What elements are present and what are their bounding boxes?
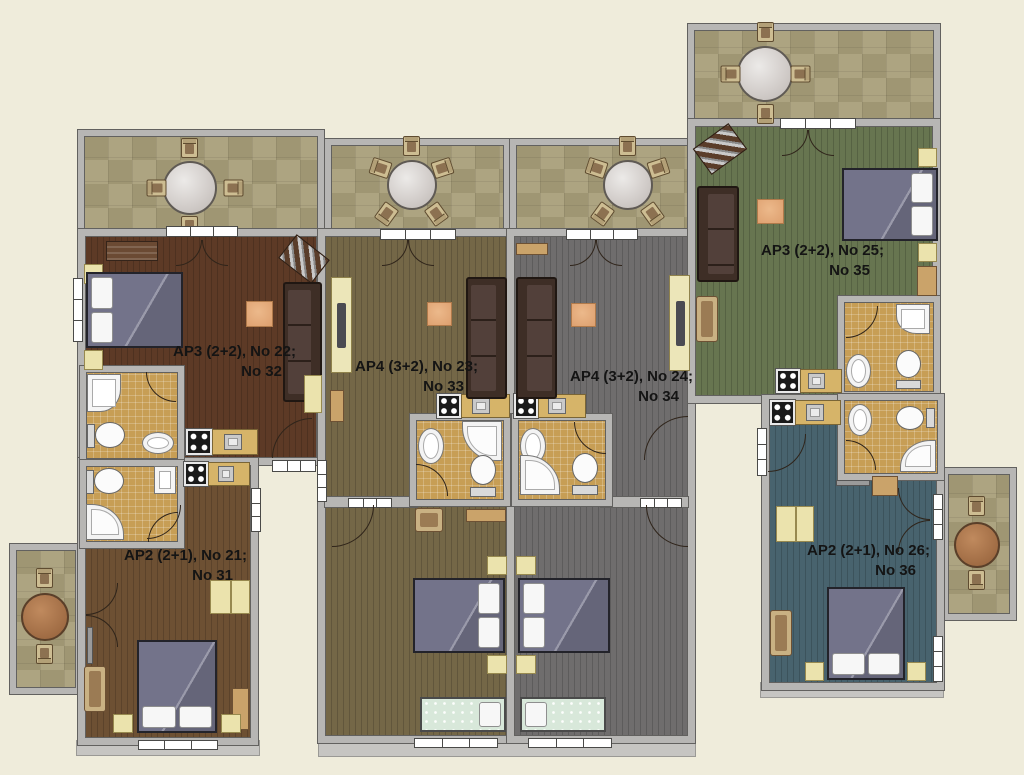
rug (757, 199, 784, 224)
apartment-label-ap25: AP3 (2+2), No 25; No 35 (760, 241, 884, 281)
apartment-label-ap26: AP2 (2+1), No 26; No 36 (806, 541, 930, 581)
pillow (142, 706, 176, 728)
apartment-label-line2: No 33 (352, 377, 478, 397)
window (251, 488, 261, 532)
pillow (91, 277, 113, 309)
apartment-label-line1: AP2 (2+1), No 21; (124, 546, 247, 566)
pillow (91, 312, 113, 344)
double-bed (137, 640, 217, 733)
apartment-label-ap21: AP2 (2+1), No 21; No 31 (124, 546, 247, 586)
armchair (696, 296, 718, 342)
pillows (142, 706, 212, 728)
chair (224, 180, 244, 197)
toilet-icon (572, 453, 598, 483)
kitchen-sink-icon (472, 398, 490, 414)
nightstand (918, 148, 937, 167)
apartment-label-line2: No 36 (806, 561, 930, 581)
rug (246, 301, 273, 327)
sink-icon (846, 354, 871, 388)
toilet-icon (470, 487, 496, 497)
sofa (697, 186, 739, 282)
stove-icon (776, 369, 800, 393)
apartment-label-line1: AP4 (3+2), No 24; (562, 367, 693, 387)
desk (331, 277, 352, 373)
single-bed (420, 697, 506, 732)
pillow (523, 583, 545, 614)
desk (872, 476, 898, 496)
toilet-icon (94, 468, 124, 494)
single-bed (520, 697, 606, 732)
toilet-icon (87, 424, 95, 448)
sofa (516, 277, 557, 399)
stove-icon (437, 394, 461, 418)
nightstand (516, 556, 536, 575)
nightstand (907, 662, 926, 681)
sink-icon (848, 404, 872, 436)
apartment-label-ap24: AP4 (3+2), No 24; No 34 (562, 367, 693, 407)
double-bed (518, 578, 610, 653)
nightstand (113, 714, 133, 733)
pillow (523, 617, 545, 648)
chair (36, 568, 53, 588)
window (757, 428, 767, 476)
pillow (832, 653, 865, 675)
double-bed (86, 272, 183, 348)
double-bed (413, 578, 505, 653)
pillow (478, 617, 500, 648)
side-cabinet (304, 375, 322, 413)
nightstand (221, 714, 241, 733)
double-bed (842, 168, 938, 241)
chair (36, 644, 53, 664)
apartment-label-line2: No 35 (760, 261, 884, 281)
side-cabinet (917, 266, 937, 296)
chair (757, 22, 774, 42)
chair (791, 66, 811, 83)
desk-chair (337, 303, 346, 348)
bistro-table (954, 522, 1000, 568)
pillow (911, 173, 933, 203)
kitchen-sink-icon (806, 404, 824, 421)
window (933, 636, 943, 682)
window (73, 278, 83, 342)
toilet-icon (896, 406, 924, 430)
stove-icon (770, 400, 795, 425)
pillow (479, 702, 501, 727)
chair (147, 180, 167, 197)
shower-icon (154, 466, 176, 494)
nightstand (487, 655, 507, 674)
nightstand (84, 350, 103, 370)
window (414, 738, 498, 748)
shower-icon (87, 374, 121, 412)
toilet-icon (95, 422, 125, 448)
window (317, 460, 327, 502)
nightstand (487, 556, 507, 575)
kitchen-sink-icon (808, 373, 825, 389)
wardrobe (776, 506, 814, 542)
shelf (516, 243, 548, 255)
nightstand (516, 655, 536, 674)
apartment-label-ap23: AP4 (3+2), No 23; No 33 (352, 357, 478, 397)
apartment-label-line2: No 32 (160, 362, 296, 382)
pillow (868, 653, 901, 675)
chair (757, 104, 774, 124)
chair (403, 136, 420, 156)
pillow (478, 583, 500, 614)
floor-plan: AP3 (2+2), No 22; No 32 AP4 (3+2), No 23… (0, 0, 1024, 775)
toilet-icon (86, 470, 94, 494)
kitchen-sink-icon (224, 434, 242, 450)
window (138, 740, 218, 750)
window (780, 118, 856, 129)
dresser (106, 241, 158, 261)
pillows (478, 583, 500, 648)
pillows (911, 173, 933, 236)
window (166, 226, 238, 237)
shelf (836, 480, 870, 486)
dining-table (737, 46, 793, 102)
toilet-icon (896, 380, 921, 389)
apartment-label-line1: AP3 (2+2), No 22; (160, 342, 296, 362)
sink-icon (142, 432, 174, 454)
chair (968, 570, 985, 590)
chair (968, 496, 985, 516)
toilet-icon (926, 408, 935, 428)
rug (571, 303, 596, 327)
chair (721, 66, 741, 83)
pillows (523, 583, 545, 648)
window (528, 738, 612, 748)
shelf (466, 509, 506, 522)
toilet-icon (572, 485, 598, 495)
stove-icon (184, 462, 208, 486)
sink-icon (418, 428, 444, 464)
apartment-label-line1: AP4 (3+2), No 23; (352, 357, 478, 377)
apartment-label-line2: No 34 (562, 387, 693, 407)
chair (619, 136, 636, 156)
desk (669, 275, 690, 371)
nightstand (805, 662, 824, 681)
apartment-label-line1: AP3 (2+2), No 25; (760, 241, 884, 261)
pillows (832, 653, 900, 675)
chair (181, 138, 198, 158)
dining-table (603, 160, 653, 210)
pillow (179, 706, 213, 728)
armchair (770, 610, 792, 656)
desk-chair (676, 301, 685, 346)
stove-icon (186, 429, 212, 455)
toilet-icon (896, 350, 921, 378)
pillow (911, 206, 933, 236)
armchair (84, 666, 106, 712)
nightstand (918, 243, 937, 262)
armchair (415, 508, 443, 532)
dining-table (163, 161, 217, 215)
apartment-label-line2: No 31 (124, 566, 247, 586)
window (933, 494, 943, 540)
pillows (91, 277, 113, 343)
apartment-label-line1: AP2 (2+1), No 26; (806, 541, 930, 561)
threshold-window (272, 460, 316, 472)
side-cabinet (330, 390, 344, 422)
bistro-table (21, 593, 69, 641)
rug (427, 302, 452, 326)
apartment-label-ap22: AP3 (2+2), No 22; No 32 (160, 342, 296, 382)
toilet-icon (470, 455, 496, 485)
window (380, 229, 456, 240)
window (566, 229, 638, 240)
double-bed (827, 587, 905, 680)
pillow (525, 702, 547, 727)
dining-table (387, 160, 437, 210)
kitchen-sink-icon (218, 466, 234, 482)
